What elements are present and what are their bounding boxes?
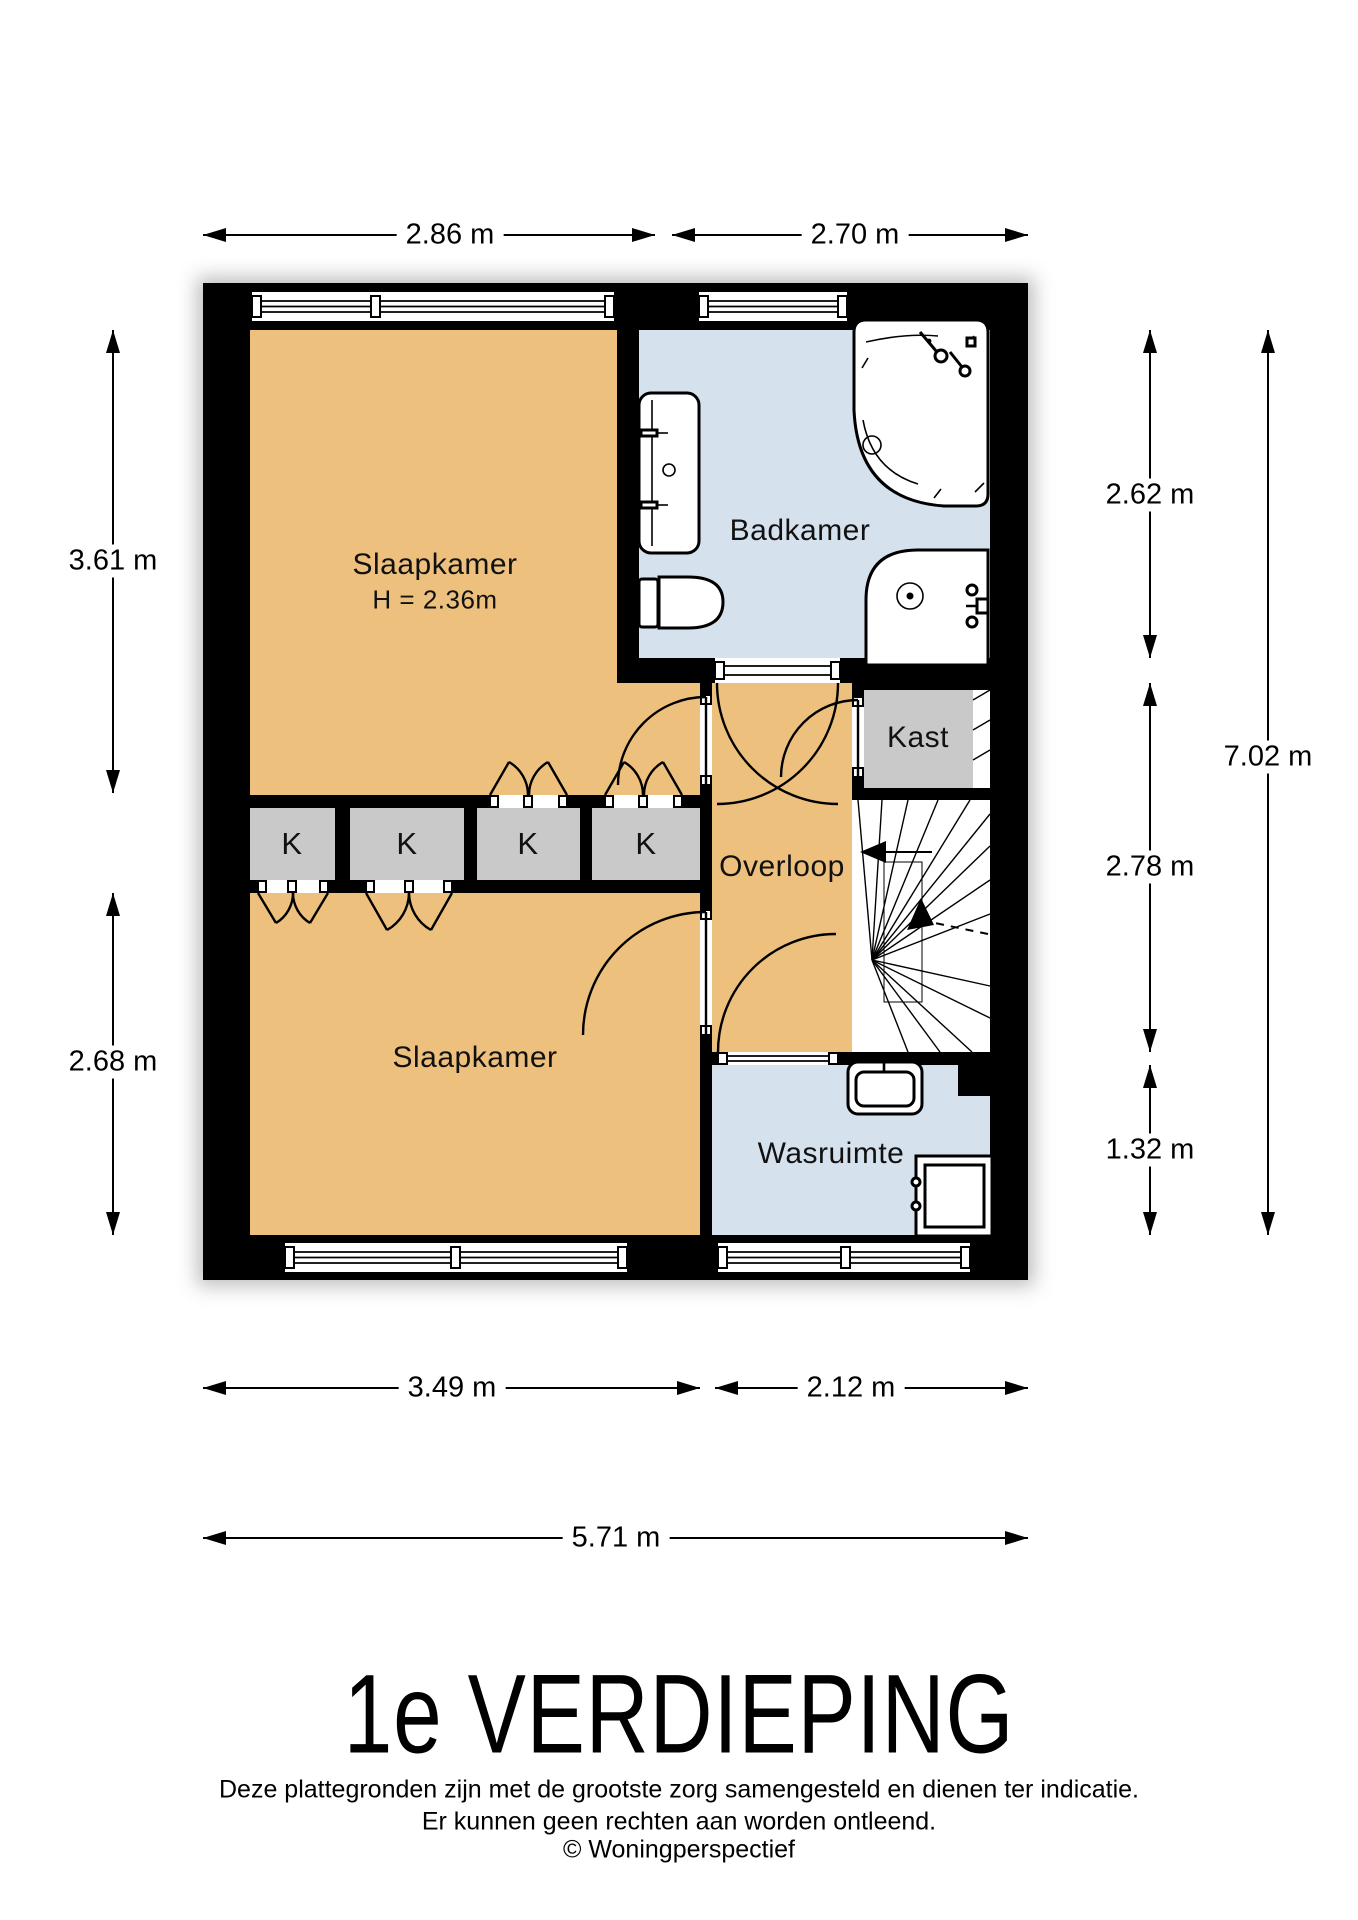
disclaimer-line1: Deze plattegronden zijn met de grootste … [219, 1776, 1139, 1805]
dim-right-overloop: 2.78 m [1097, 851, 1204, 884]
dim-top-right: 2.70 m [802, 219, 909, 252]
floorplan-page: Slaapkamer H = 2.36m Badkamer Kast Overl… [0, 0, 1358, 1920]
stair-upper-strip [973, 690, 990, 788]
dim-right-badkamer: 2.62 m [1097, 479, 1204, 512]
label-slaapkamer-top: Slaapkamer [352, 548, 517, 582]
window-top-badkamer [699, 292, 847, 321]
dim-bottom-total: 5.71 m [563, 1522, 670, 1555]
window-bottom-wasruimte [718, 1243, 970, 1272]
dim-bottom-left: 3.49 m [399, 1372, 506, 1405]
label-slaapkamer-bottom: Slaapkamer [392, 1041, 557, 1075]
washbasin [866, 550, 988, 665]
dim-right-wasruimte: 1.32 m [1097, 1134, 1204, 1167]
label-kast: Kast [887, 721, 949, 755]
dim-left-upper: 3.61 m [60, 545, 167, 578]
page-title: 1e VERDIEPING [344, 1650, 1014, 1779]
dim-right-total: 7.02 m [1215, 741, 1322, 774]
vanity-unit [639, 393, 699, 553]
dim-left-lower: 2.68 m [60, 1046, 167, 1079]
label-wasruimte: Wasruimte [758, 1137, 905, 1171]
wasruimte-corner-notch [958, 1065, 990, 1096]
label-closet-k3: K [517, 826, 538, 862]
laundry-sink [848, 1056, 922, 1114]
label-badkamer: Badkamer [730, 514, 871, 548]
disclaimer-line2: Er kunnen geen rechten aan worden ontlee… [422, 1808, 936, 1837]
window-top-slaapkamer [252, 292, 614, 321]
label-closet-k1: K [281, 826, 302, 862]
floorplan-drawing [0, 0, 1358, 1920]
window-bottom-slaapkamer [285, 1243, 627, 1272]
dim-top-left: 2.86 m [397, 219, 504, 252]
credit-line: © Woningperspectief [563, 1836, 795, 1865]
toilet [639, 577, 723, 628]
label-slaapkamer-top-height: H = 2.36m [372, 585, 497, 616]
washing-machine [912, 1156, 992, 1236]
label-closet-k2: K [396, 826, 417, 862]
dim-bottom-right: 2.12 m [798, 1372, 905, 1405]
label-closet-k4: K [635, 826, 656, 862]
label-overloop: Overloop [719, 850, 845, 884]
